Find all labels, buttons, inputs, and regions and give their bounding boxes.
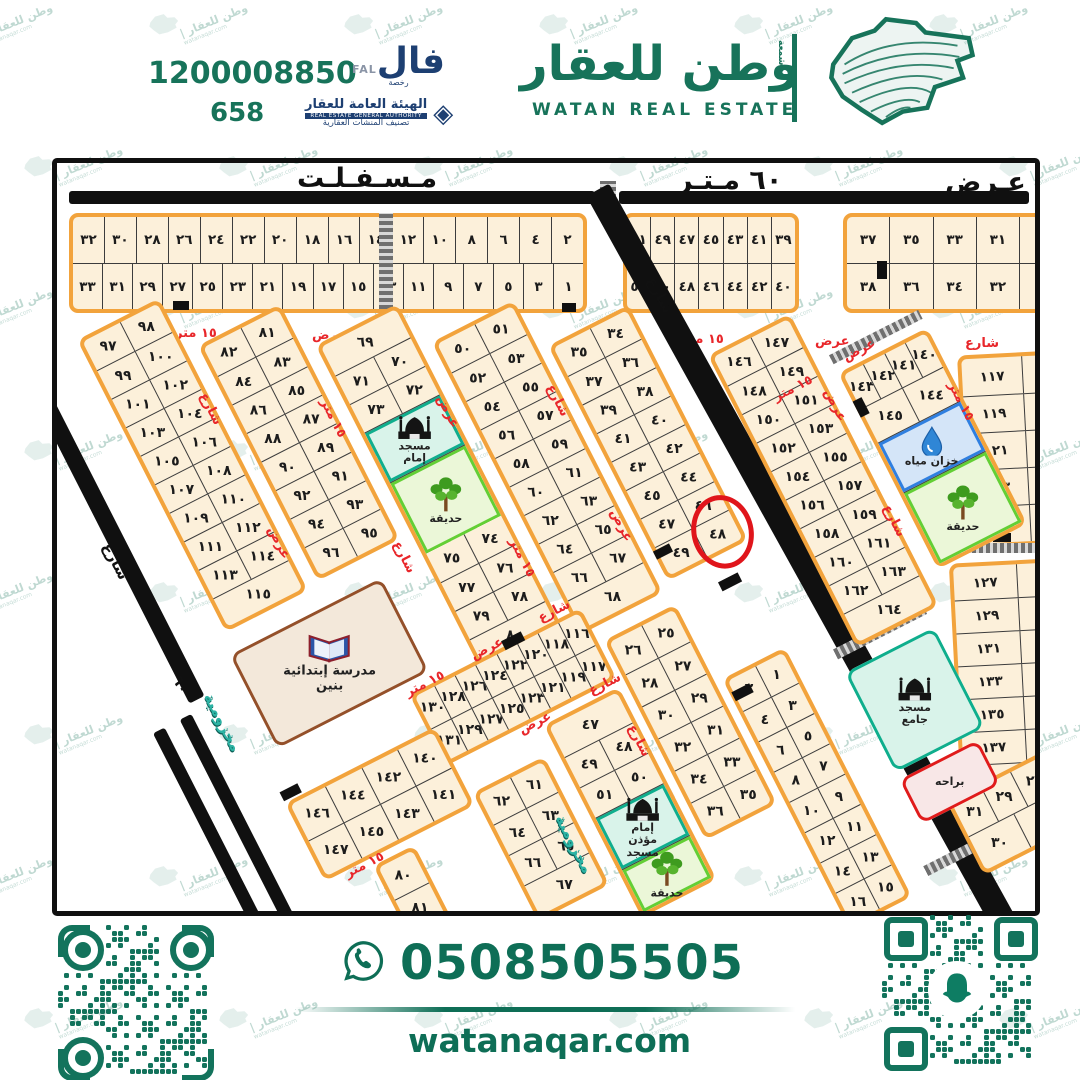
qr-module [1008, 1029, 1013, 1034]
qr-module [160, 1045, 165, 1050]
qr-corner-bracket [182, 925, 214, 957]
qr-module [196, 1021, 201, 1026]
plot-number: ٦١ [526, 777, 543, 793]
qr-module [100, 991, 105, 996]
plot-number: ١٠٦ [192, 434, 218, 450]
qr-module [984, 1053, 989, 1058]
qr-module [930, 1035, 935, 1040]
qr-module [106, 1063, 111, 1068]
qr-module [124, 967, 129, 972]
authority-name: الهيئة العامة للعقار [305, 98, 427, 113]
qr-module [1020, 1017, 1025, 1022]
plot-number: ١٤٧ [764, 335, 790, 351]
brand-mark: شمعة [776, 40, 786, 65]
footer-phone[interactable]: 0508505505 [400, 935, 744, 991]
qr-module [148, 1027, 153, 1032]
plot-number: ٣٢ [80, 232, 96, 248]
qr-module [124, 991, 129, 996]
plot-number: ٢٩ [996, 789, 1013, 805]
plot-number: ٣٥ [739, 787, 756, 803]
plot-number: ٦٠ [527, 484, 544, 500]
qr-module [966, 1017, 971, 1022]
qr-module [202, 1009, 207, 1014]
qr-module [990, 1029, 995, 1034]
qr-module [142, 1045, 147, 1050]
qr-module [1002, 1029, 1007, 1034]
plot-number: ١٣٠ [420, 700, 446, 716]
plot-number: ١٢٩ [457, 722, 483, 738]
qr-module [972, 1017, 977, 1022]
qr-module [130, 973, 135, 978]
plot-number: ٤١ [614, 431, 631, 447]
qr-module [160, 1063, 165, 1068]
qr-module [100, 997, 105, 1002]
qr-module [996, 1035, 1001, 1040]
plot-number: ٤٥ [643, 488, 660, 504]
qr-module [142, 997, 147, 1002]
qr-module [190, 1021, 195, 1026]
qr-module [990, 975, 995, 980]
plot-number: ١٠٩ [183, 510, 209, 526]
plot-number: ١٢١ [540, 680, 566, 696]
qr-module [166, 1021, 171, 1026]
plot-number: ٧١ [353, 373, 370, 389]
qr-module [912, 1005, 917, 1010]
plot-number: ٥٧ [536, 407, 553, 423]
qr-module [924, 1011, 929, 1016]
qr-module [990, 1059, 995, 1064]
plot-number: ١٤٠ [412, 751, 438, 767]
qr-module [142, 1027, 147, 1032]
qr-module [154, 949, 159, 954]
plot-number: ٦٩ [357, 334, 374, 350]
qr-module [906, 999, 911, 1004]
qr-module [88, 973, 93, 978]
qr-module [100, 979, 105, 984]
plot-number: ٥٩ [551, 436, 568, 452]
qr-module [948, 1023, 953, 1028]
qr-module [136, 961, 141, 966]
header: 1200008850 658 FALفال رخصة الهيئة العامة… [0, 0, 1080, 158]
brand-divider [792, 34, 797, 122]
qr-module [172, 1063, 177, 1068]
qr-module [148, 1021, 153, 1026]
qr-module [172, 1021, 177, 1026]
plot-number: ٤٣ [629, 459, 646, 475]
qr-module [136, 979, 141, 984]
plot-number: ٥٥ [521, 379, 538, 395]
qr-module [112, 1003, 117, 1008]
plot-number: ٦٤ [509, 824, 526, 840]
qr-module [118, 1015, 123, 1020]
qr-module [202, 1039, 207, 1044]
qr-module [172, 1039, 177, 1044]
plot-number: ٣٤ [690, 771, 707, 787]
qr-module [930, 951, 935, 956]
poi-label: جامع [902, 714, 928, 727]
qr-module [112, 955, 117, 960]
plot-number: ٦١ [565, 464, 582, 480]
qr-module [954, 1059, 959, 1064]
qr-module [130, 991, 135, 996]
plot-number: ٨٠ [395, 867, 412, 883]
qr-module [136, 931, 141, 936]
qr-module [184, 985, 189, 990]
qr-module [190, 1033, 195, 1038]
qr-module [148, 1063, 153, 1068]
qr-module [966, 1035, 971, 1040]
qr-module [954, 945, 959, 950]
qr-module [70, 1015, 75, 1020]
plot-number: ٩٤ [308, 516, 325, 532]
qr-module [924, 975, 929, 980]
qr-module [942, 1041, 947, 1046]
plot-number: ٣ [788, 697, 797, 713]
plot-number: ١٤٦ [726, 354, 752, 370]
qr-module [924, 969, 929, 974]
plot-number: ١٠٧ [168, 482, 194, 498]
qr-module [978, 1017, 983, 1022]
qr-module [118, 985, 123, 990]
qr-module [984, 1035, 989, 1040]
qr-module [996, 981, 1001, 986]
qr-module [106, 1027, 111, 1032]
qr-module [166, 985, 171, 990]
plot-number: ٢٧ [1026, 773, 1040, 789]
plot-number: ٣٧ [585, 374, 602, 390]
plot-number: ٩٩ [114, 368, 131, 384]
plot-number: ٥ [804, 728, 813, 744]
qr-module [112, 985, 117, 990]
qr-module [166, 1039, 171, 1044]
qr-module [184, 973, 189, 978]
qr-module [972, 945, 977, 950]
plot-number: ٩٠ [279, 459, 296, 475]
qr-module [100, 1003, 105, 1008]
plot-number: ١٦٠ [828, 554, 854, 570]
plot-number: ٤٩ [581, 756, 598, 772]
watermark-subtext: watanaqar.com [0, 297, 57, 330]
qr-module [142, 1069, 147, 1074]
qr-module [154, 961, 159, 966]
qr-module [990, 1041, 995, 1046]
qr-module [124, 937, 129, 942]
plot-number: ١٥٢ [770, 440, 796, 456]
plot-number: ٥٦ [498, 427, 515, 443]
plot-number: ١٤٣ [849, 379, 875, 395]
plot-number: ١٤١ [891, 358, 917, 374]
qr-module [960, 939, 965, 944]
plot-number: ٦ [776, 742, 785, 758]
qr-module [172, 1045, 177, 1050]
qr-module [888, 987, 893, 992]
qr-module [112, 931, 117, 936]
plot-number: ٧٠ [391, 354, 408, 370]
plot-number: ٩١ [331, 468, 348, 484]
plot-number: ٢٥ [657, 626, 674, 642]
qr-module [160, 1057, 165, 1062]
plot-number: ١٤٥ [358, 824, 384, 840]
plot-number: ١١٩ [560, 669, 586, 685]
qr-module [154, 1027, 159, 1032]
brand-name-en: WATAN REAL ESTATE [532, 100, 797, 120]
qr-module [64, 973, 69, 978]
qr-module [1014, 1005, 1019, 1010]
qr-module [882, 981, 887, 986]
plot-number: ١٢٥ [498, 701, 524, 717]
qr-module [130, 979, 135, 984]
qr-module [178, 1033, 183, 1038]
qr-module [918, 987, 923, 992]
plot-number: ٦٦ [571, 569, 588, 585]
plot-number: ١١٥ [245, 586, 271, 602]
plot-number: ٥١ [492, 321, 509, 337]
qr-module [936, 927, 941, 932]
plot-number: ٥٨ [513, 455, 530, 471]
plot-number: ٩٨ [138, 319, 155, 335]
qr-module [124, 979, 129, 984]
saudi-map-icon [806, 8, 996, 140]
plot-number: ١٤٠ [911, 347, 937, 363]
qr-module [196, 973, 201, 978]
plot-number: ١١٦ [564, 626, 590, 642]
plot-number: ١ [773, 667, 782, 683]
qr-module [1026, 1023, 1031, 1028]
qr-module [112, 937, 117, 942]
qr-module [900, 963, 905, 968]
qr-module [894, 1011, 899, 1016]
authority-sub: تصنيف المنشآت العقارية [305, 119, 427, 129]
qr-module [972, 933, 977, 938]
qr-module [202, 991, 207, 996]
plot-number: ١٤٤ [918, 387, 944, 403]
qr-module [888, 975, 893, 980]
whatsapp-icon [340, 938, 386, 988]
plot-number: ٩٣ [346, 497, 363, 513]
qr-module [936, 1047, 941, 1052]
qr-module [990, 1047, 995, 1052]
qr-module [936, 1041, 941, 1046]
plot-number: ٣٠ [991, 834, 1008, 850]
qr-module [154, 1003, 159, 1008]
plot-number: ٧٢ [405, 382, 422, 398]
qr-module [1026, 1047, 1031, 1052]
plot-number: ٦٢ [493, 794, 510, 810]
qr-module [882, 993, 887, 998]
plot-number: ١٤٢ [870, 368, 896, 384]
qr-module [142, 1051, 147, 1056]
plot-number: ١١٢ [235, 519, 261, 535]
watermark-map-blob [20, 438, 56, 464]
plot-number: ١٢٨ [441, 689, 467, 705]
qr-module [118, 1021, 123, 1026]
qr-module [100, 1009, 105, 1014]
qr-module [1002, 993, 1007, 998]
plot-number: ١٥ [877, 879, 894, 895]
plot-number: ١٤٢ [376, 769, 402, 785]
qr-module [954, 951, 959, 956]
qr-module [1020, 981, 1025, 986]
qr-module [82, 1015, 87, 1020]
plot-number: ٤ [760, 712, 769, 728]
qr-module [136, 1015, 141, 1020]
plot-number: ٣٩ [599, 402, 616, 418]
qr-module [160, 1069, 165, 1074]
qr-module [136, 949, 141, 954]
qr-module [984, 1029, 989, 1034]
qr-module [124, 925, 129, 930]
plot-number: ١٢٧ [478, 711, 504, 727]
qr-code-website[interactable] [58, 925, 208, 1075]
plot-number: ١٥٧ [837, 478, 863, 494]
qr-module [148, 955, 153, 960]
qr-module [1026, 1005, 1031, 1010]
plot-number: ٨٢ [220, 344, 237, 360]
plot-number: ١١٨ [544, 637, 570, 653]
qr-finder [994, 917, 1038, 961]
qr-corner-bracket [58, 925, 90, 957]
qr-module [930, 933, 935, 938]
plot-number: ١٢٣ [519, 690, 545, 706]
qr-module [1026, 1029, 1031, 1034]
plot-number: ١٢٢ [502, 658, 528, 674]
plot-number: ٤٩ [672, 545, 689, 561]
poi-label: حديقة [946, 521, 979, 534]
plot-number: ٥٢ [469, 370, 486, 386]
qr-module [918, 1011, 923, 1016]
qr-module [148, 985, 153, 990]
qr-module [118, 1063, 123, 1068]
qr-module [894, 999, 899, 1004]
qr-module [82, 991, 87, 996]
plot-number: ١٠ [802, 803, 819, 819]
qr-module [936, 1023, 941, 1028]
qr-module [154, 991, 159, 996]
qr-module [930, 915, 935, 920]
qr-module [118, 931, 123, 936]
footer-website[interactable]: watanaqar.com [408, 1021, 691, 1060]
qr-module [966, 945, 971, 950]
qr-module [184, 1027, 189, 1032]
qr-module [954, 939, 959, 944]
footer-divider [295, 1007, 795, 1012]
qr-module [88, 1015, 93, 1020]
watermark-map-blob [20, 722, 56, 748]
qr-module [136, 1051, 141, 1056]
qr-module [900, 999, 905, 1004]
plot-number: ٤٧ [582, 717, 599, 733]
watermark-subtext: watanaqar.com [0, 865, 57, 898]
plot-number: ٣٠ [112, 232, 128, 248]
qr-module [130, 1069, 135, 1074]
footer: 0508505505 watanaqar.com [0, 905, 1080, 1080]
qr-module [966, 939, 971, 944]
qr-module [936, 945, 941, 950]
brand-name-ar: وطن للعقار [520, 40, 800, 88]
plot-number: ١٦٤ [876, 601, 902, 617]
qr-module [196, 991, 201, 996]
poi-label: بنين [316, 680, 343, 695]
classification-number: 658 [210, 98, 264, 128]
watermark-text: | وطن للعقارwatanaqar.com [0, 853, 57, 899]
authority-diamond-icon: ◈ [433, 99, 453, 129]
qr-module [112, 1027, 117, 1032]
qr-module [996, 1011, 1001, 1016]
qr-module [124, 1003, 129, 1008]
qr-module [88, 1009, 93, 1014]
qr-module [978, 1047, 983, 1052]
plot-number: ١٦٢ [843, 582, 869, 598]
qr-module [118, 973, 123, 978]
qr-module [1026, 1053, 1031, 1058]
qr-module [978, 1059, 983, 1064]
qr-module [106, 991, 111, 996]
qr-module [184, 997, 189, 1002]
qr-module [142, 949, 147, 954]
plot-number: ٣٢ [674, 739, 691, 755]
qr-module [124, 1033, 129, 1038]
qr-module [136, 1033, 141, 1038]
plot-number: ٢٨ [1036, 812, 1040, 828]
qr-module [154, 1069, 159, 1074]
plot-number: ٧٨ [511, 589, 528, 605]
qr-module [142, 973, 147, 978]
qr-module [106, 1009, 111, 1014]
plot-number: ٤٢ [666, 440, 683, 456]
qr-module [112, 1051, 117, 1056]
qr-module [1008, 975, 1013, 980]
qr-module [154, 1057, 159, 1062]
qr-module [58, 997, 63, 1002]
qr-code-snapchat[interactable] [882, 915, 1032, 1065]
qr-module [1002, 1035, 1007, 1040]
plot-number: ٦٤ [556, 541, 573, 557]
qr-module [136, 967, 141, 972]
qr-module [130, 961, 135, 966]
plot-number: ٨٣ [273, 354, 290, 370]
fal-logo-en: FAL [352, 63, 377, 76]
qr-corner-bracket [58, 1049, 90, 1080]
plot-number: ٦٧ [609, 550, 626, 566]
qr-module [142, 1003, 147, 1008]
plot-number: ١٥٤ [784, 468, 810, 484]
qr-module [984, 1059, 989, 1064]
qr-module [142, 925, 147, 930]
qr-module [172, 973, 177, 978]
qr-module [142, 1021, 147, 1026]
plot-number: ٧٧ [458, 580, 475, 596]
qr-module [960, 1041, 965, 1046]
qr-module [76, 1009, 81, 1014]
qr-module [166, 1051, 171, 1056]
plot-number: ٤٠ [651, 412, 668, 428]
qr-module [978, 951, 983, 956]
qr-corner-bracket [182, 1049, 214, 1080]
plot-number: ١٥٨ [813, 525, 839, 541]
qr-module [118, 937, 123, 942]
qr-module [900, 981, 905, 986]
qr-module [888, 963, 893, 968]
qr-module [130, 949, 135, 954]
unified-number: 1200008850 [148, 56, 357, 91]
qr-module [172, 1015, 177, 1020]
qr-module [912, 999, 917, 1004]
poi-label: مدرسة إبتدائية [283, 665, 376, 680]
qr-module [1020, 1011, 1025, 1016]
plot-number: ٧٩ [473, 608, 490, 624]
qr-module [966, 915, 971, 920]
qr-module [130, 955, 135, 960]
